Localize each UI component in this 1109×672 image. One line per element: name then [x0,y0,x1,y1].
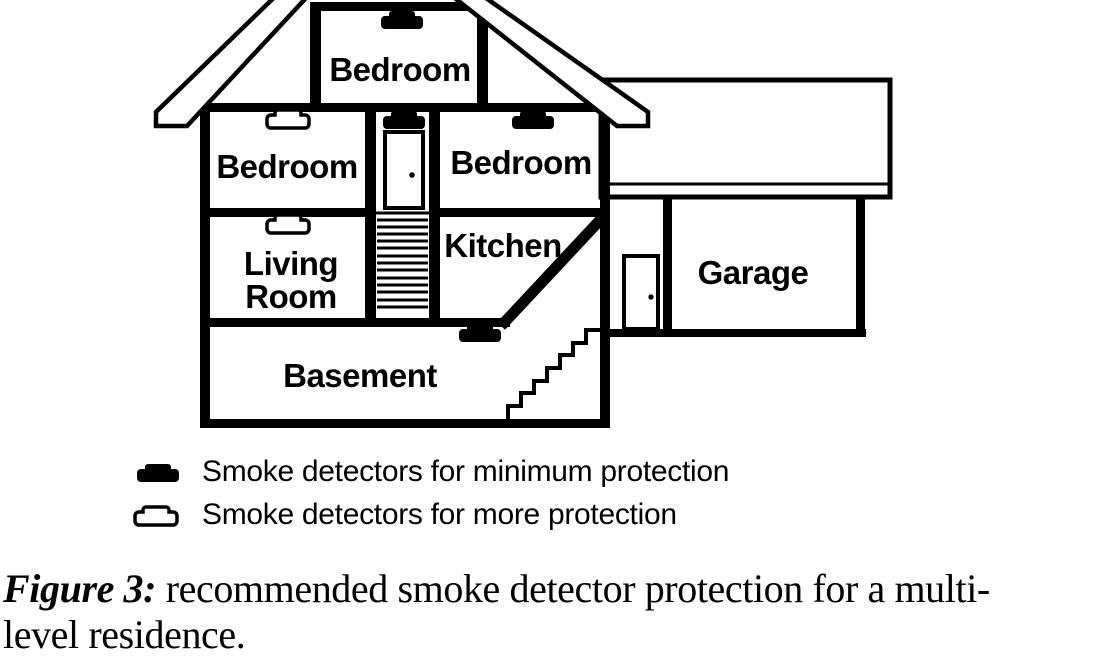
garage-door [624,256,658,329]
room-label-kitchen: Kitchen [444,227,562,264]
room-label-garage: Garage [698,254,809,291]
interior-door-knob [409,172,415,178]
room-label-attic-bedroom: Bedroom [329,51,470,88]
room-label-living-room-line1: Living [244,245,338,282]
room-label-basement: Basement [283,357,437,394]
figure-caption: Figure 3: recommended smoke detector pro… [3,566,1109,658]
legend-label-more: Smoke detectors for more protection [202,498,677,532]
figure: Bedroom Bedroom Bedroom Kitchen Living R… [0,0,1109,672]
caption-line1: recommended smoke detector protection fo… [166,566,990,611]
garage-door-knob [648,294,653,299]
smoke-detector-outline-living-room [267,215,309,233]
staircase [376,213,429,307]
legend-label-minimum: Smoke detectors for minimum protection [202,455,729,489]
figure-label: Figure 3: [3,566,156,611]
room-label-living-room-line2: Room [245,278,337,315]
smoke-detector-filled-hallway [383,111,425,129]
room-label-right-bedroom: Bedroom [450,144,591,181]
smoke-detector-filled-attic [381,11,423,29]
garage-roof [601,80,890,197]
room-label-left-bedroom: Bedroom [216,148,357,185]
caption-line2: level residence. [3,612,245,657]
filled-detector-icon [134,462,182,486]
house-diagram: Bedroom Bedroom Bedroom Kitchen Living R… [0,0,1109,445]
interior-door [385,132,423,208]
smoke-detector-filled-right-bedroom [512,111,554,129]
outline-detector-icon [132,505,180,529]
smoke-detector-outline-left-bedroom [267,110,309,128]
basement-stairs [508,330,601,419]
